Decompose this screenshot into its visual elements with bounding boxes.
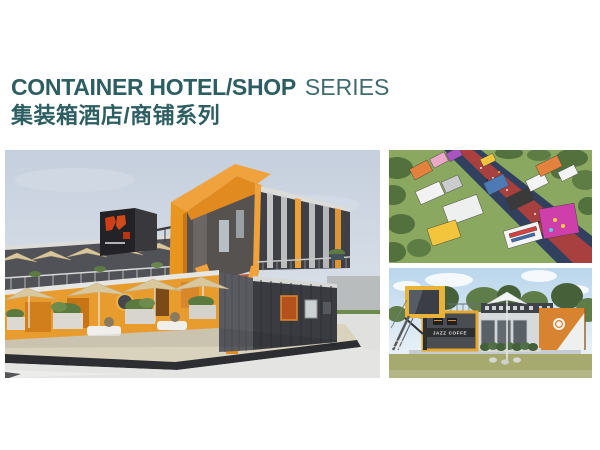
page-title: CONTAINER HOTEL/SHOPSERIES	[11, 76, 389, 99]
shrubs	[480, 342, 541, 352]
container-hotel-illustration	[5, 150, 380, 378]
lawn-light	[389, 370, 592, 378]
coffee-shop-image: JAZZ COFFE	[389, 268, 592, 378]
title-chinese: 集装箱酒店/商铺系列	[11, 103, 389, 129]
page-header: CONTAINER HOTEL/SHOPSERIES 集装箱酒店/商铺系列	[11, 76, 389, 129]
catalog-page: { "header": { "title_en": "CONTAINER HOT…	[0, 0, 600, 450]
coffee-sign-text: JAZZ COFFE	[433, 331, 467, 336]
signboard	[100, 208, 157, 256]
aerial-market-image	[389, 150, 592, 263]
title-series-suffix: SERIES	[305, 74, 389, 100]
main-render-image	[5, 150, 380, 378]
title-english: CONTAINER HOTEL/SHOP	[11, 74, 296, 100]
coffee-shop-illustration: JAZZ COFFE	[389, 268, 592, 378]
aerial-market-illustration	[389, 150, 592, 263]
